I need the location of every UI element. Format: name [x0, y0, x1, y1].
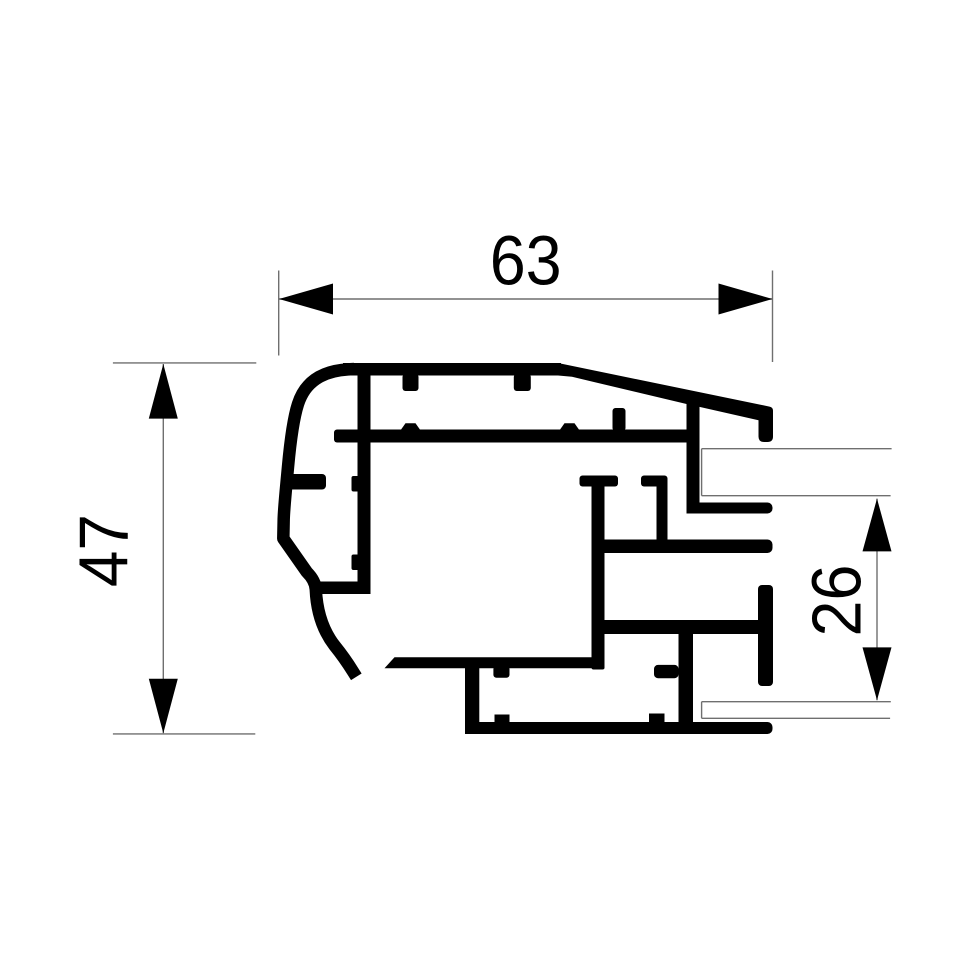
svg-text:47: 47: [65, 514, 143, 587]
svg-text:26: 26: [798, 565, 876, 637]
svg-text:63: 63: [490, 222, 562, 300]
